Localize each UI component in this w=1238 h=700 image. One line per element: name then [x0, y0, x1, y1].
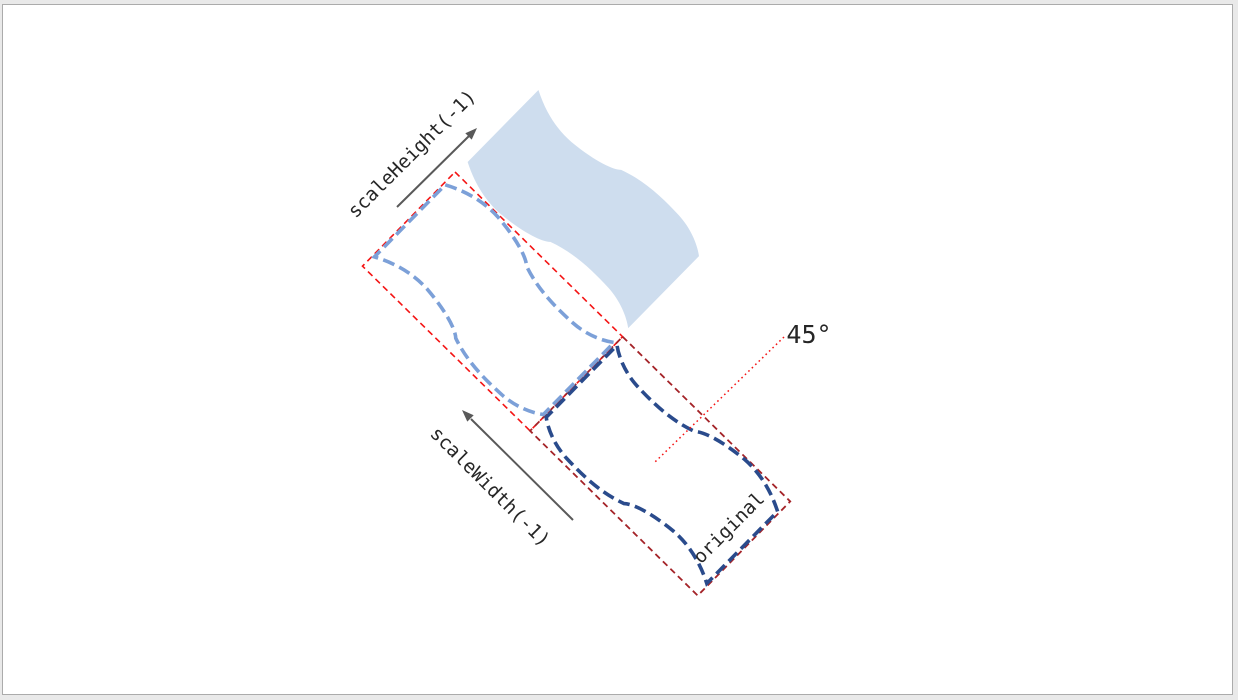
transform-diagram: scaleHeight(-1) scaleWidth(-1) original …: [0, 0, 1238, 700]
result-flag-shape: [458, 83, 710, 334]
angle-label: 45°: [786, 320, 831, 349]
scale-height-label: scaleHeight(-1): [344, 86, 481, 223]
scale-width-label: scaleWidth(-1): [426, 423, 555, 552]
original-label: original: [689, 488, 769, 568]
original-flag-outline: [535, 339, 787, 590]
